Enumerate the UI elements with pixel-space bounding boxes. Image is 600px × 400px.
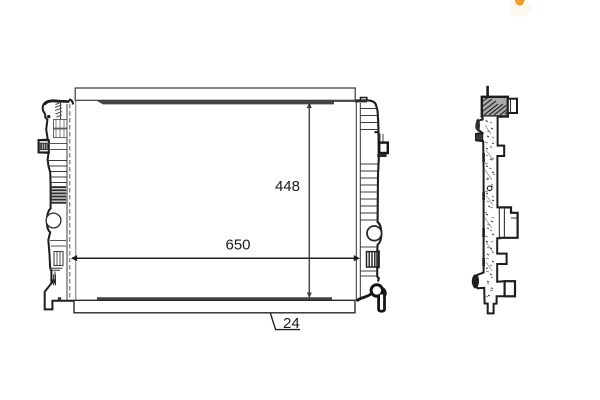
svg-text:448: 448 xyxy=(275,178,300,195)
svg-text:650: 650 xyxy=(225,237,250,254)
svg-text:24: 24 xyxy=(283,315,300,332)
